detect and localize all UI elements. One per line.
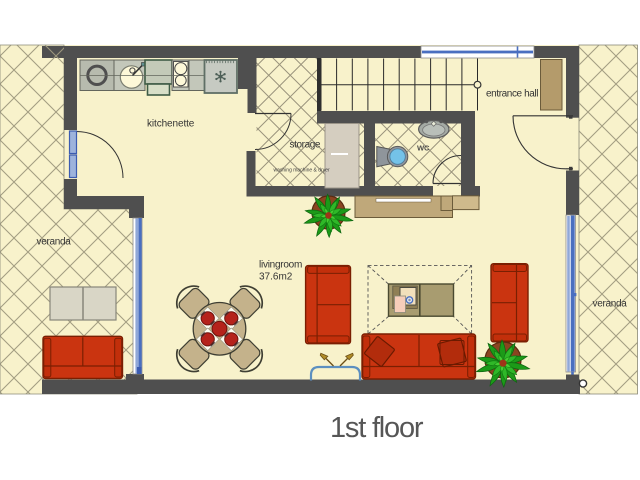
svg-text:kitchenette: kitchenette <box>147 119 195 130</box>
svg-text:veranda: veranda <box>37 237 72 248</box>
svg-text:veranda: veranda <box>593 299 628 310</box>
svg-text:storage: storage <box>290 140 321 151</box>
svg-text:37.6m2: 37.6m2 <box>259 272 293 283</box>
svg-text:livingroom: livingroom <box>259 260 302 271</box>
svg-text:entrance hall: entrance hall <box>486 89 538 100</box>
svg-text:WC: WC <box>417 144 430 153</box>
svg-text:1st floor: 1st floor <box>330 412 424 444</box>
svg-text:washing machine & dryer: washing machine & dryer <box>274 168 330 174</box>
